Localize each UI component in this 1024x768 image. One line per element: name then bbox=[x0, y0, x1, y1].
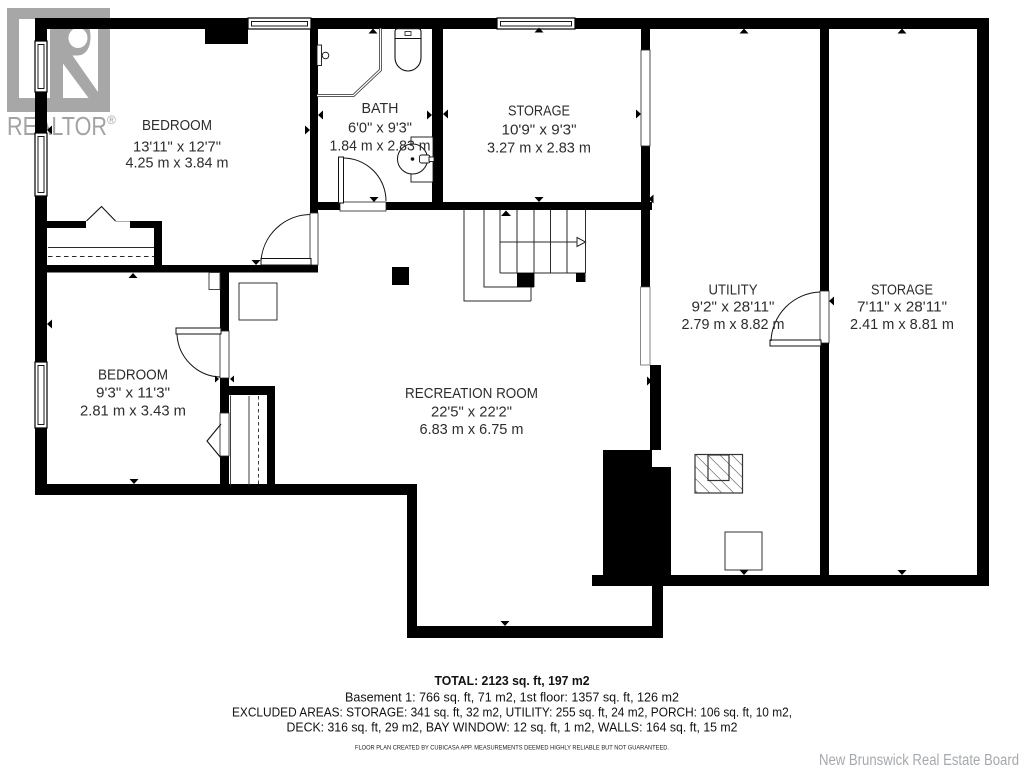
svg-text:13'11" x 12'7": 13'11" x 12'7" bbox=[133, 139, 221, 156]
svg-text:10'9" x 9'3": 10'9" x 9'3" bbox=[502, 122, 577, 139]
svg-text:6'0" x 9'3": 6'0" x 9'3" bbox=[348, 120, 412, 137]
svg-text:2.81 m x 3.43 m: 2.81 m x 3.43 m bbox=[80, 403, 186, 420]
svg-text:1.84 m x 2.83 m: 1.84 m x 2.83 m bbox=[330, 138, 431, 155]
svg-text:2.41 m x 8.81 m: 2.41 m x 8.81 m bbox=[850, 316, 954, 333]
svg-text:BEDROOM: BEDROOM bbox=[142, 117, 212, 134]
svg-text:New Brunswick Real Estate Boar: New Brunswick Real Estate Board bbox=[819, 752, 1019, 768]
svg-text:STORAGE: STORAGE bbox=[508, 103, 570, 120]
svg-text:2.79 m x 8.82 m: 2.79 m x 8.82 m bbox=[682, 316, 785, 333]
svg-text:7'11" x 28'11": 7'11" x 28'11" bbox=[857, 299, 947, 316]
svg-text:BEDROOM: BEDROOM bbox=[98, 367, 168, 384]
svg-text:DECK: 316 sq. ft, 29 m2, BAY W: DECK: 316 sq. ft, 29 m2, BAY WINDOW: 12 … bbox=[287, 721, 738, 735]
svg-text:BATH: BATH bbox=[362, 100, 399, 117]
svg-text:RECREATION ROOM: RECREATION ROOM bbox=[405, 385, 538, 402]
svg-text:4.25 m x 3.84 m: 4.25 m x 3.84 m bbox=[126, 155, 229, 172]
svg-text:EXCLUDED AREAS: STORAGE: 341 s: EXCLUDED AREAS: STORAGE: 341 sq. ft, 32 … bbox=[232, 706, 792, 720]
svg-text:FLOOR PLAN CREATED BY CUBICASA: FLOOR PLAN CREATED BY CUBICASA APP. MEAS… bbox=[355, 745, 669, 752]
svg-text:6.83 m x 6.75 m: 6.83 m x 6.75 m bbox=[420, 421, 524, 438]
svg-text:STORAGE: STORAGE bbox=[871, 282, 933, 299]
svg-text:UTILITY: UTILITY bbox=[709, 282, 758, 299]
svg-text:3.27 m x 2.83 m: 3.27 m x 2.83 m bbox=[487, 140, 591, 157]
svg-text:9'3" x 11'3": 9'3" x 11'3" bbox=[96, 385, 170, 402]
svg-text:9'2" x 28'11": 9'2" x 28'11" bbox=[692, 299, 775, 316]
svg-text:REALTOR: REALTOR bbox=[7, 111, 107, 141]
svg-text:®: ® bbox=[107, 113, 116, 127]
svg-text:Basement 1: 766 sq. ft, 71 m2,: Basement 1: 766 sq. ft, 71 m2, 1st floor… bbox=[345, 691, 679, 705]
svg-text:22'5" x 22'2": 22'5" x 22'2" bbox=[431, 404, 512, 421]
svg-text:TOTAL: 2123 sq. ft, 197 m2: TOTAL: 2123 sq. ft, 197 m2 bbox=[435, 674, 590, 688]
